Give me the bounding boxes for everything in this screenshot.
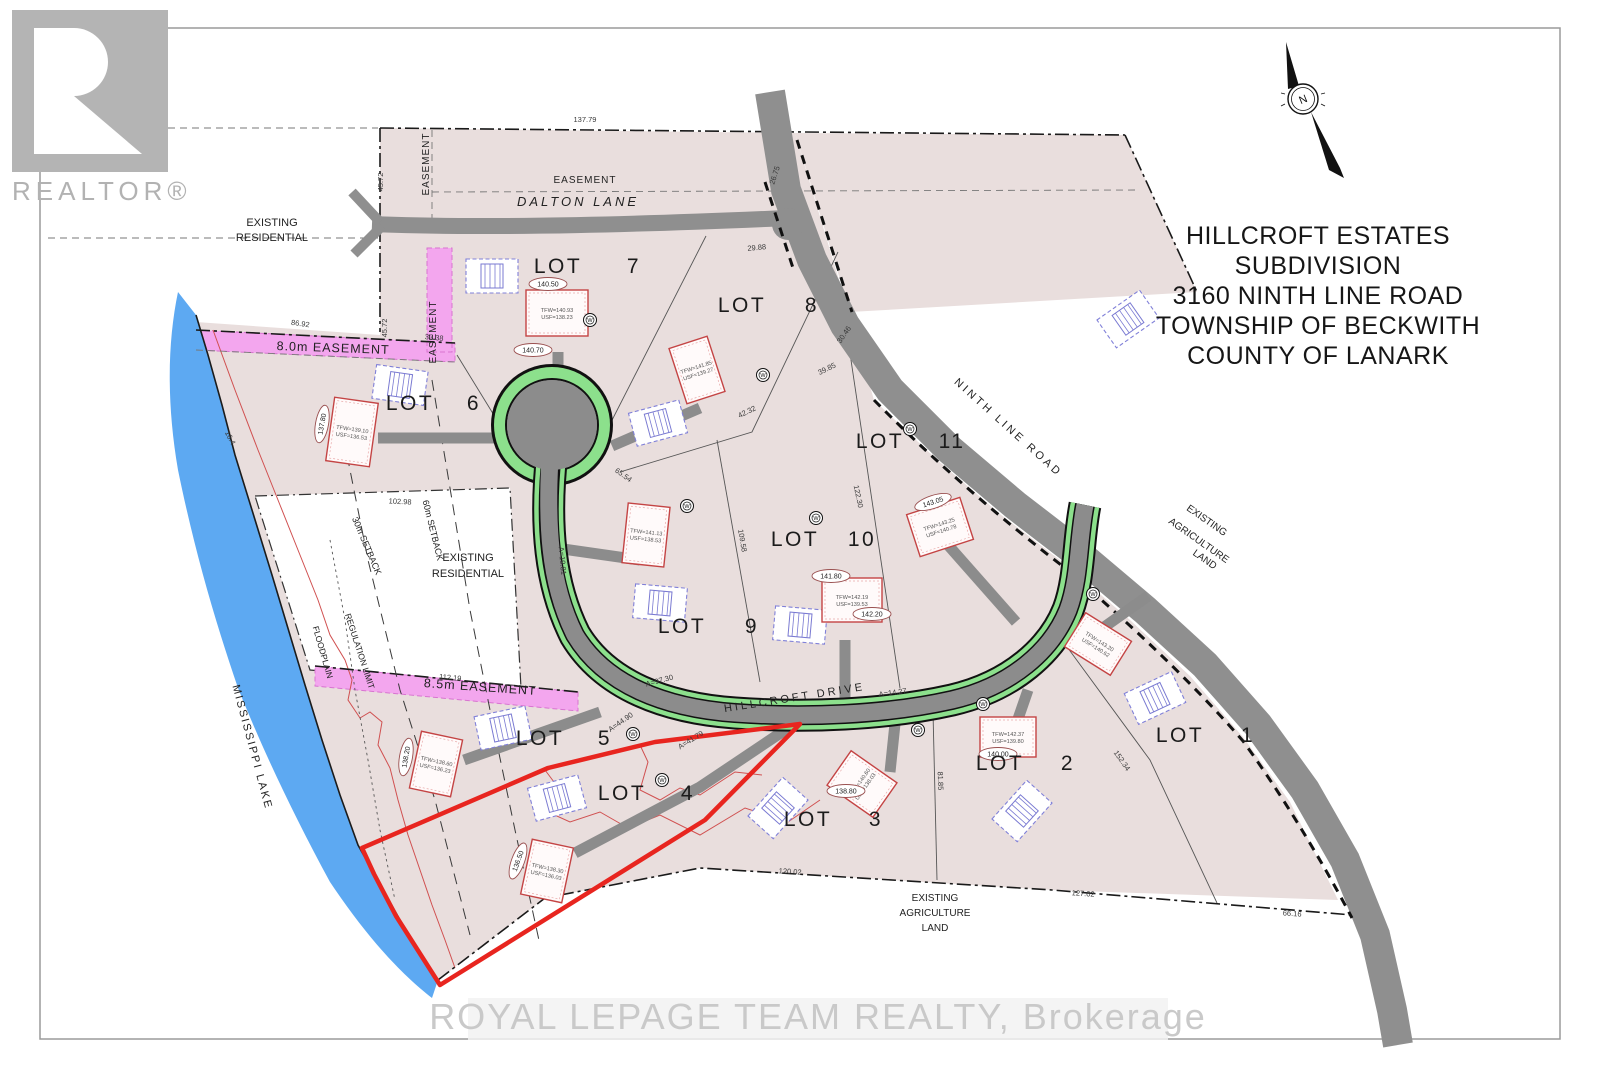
oval-value: 141.80 xyxy=(820,573,842,580)
dimension-text: 45.72 xyxy=(376,173,385,192)
map-label: RESIDENTIAL xyxy=(432,568,504,580)
lot-label-word: LOT xyxy=(784,808,832,831)
elevation-oval: 141.80 xyxy=(812,570,850,583)
well-symbol: W xyxy=(584,314,597,327)
lot-label-number: 4 xyxy=(681,782,695,805)
well-letter: W xyxy=(587,318,593,324)
lot-label-number: 1 xyxy=(1241,724,1255,747)
elevation-oval: 140.70 xyxy=(514,344,552,357)
elevation-oval: 138.80 xyxy=(827,785,865,798)
map-label: DALTON LANE xyxy=(517,194,639,209)
realtor-wordmark: REALTOR® xyxy=(12,176,192,206)
road-junction xyxy=(772,208,804,240)
lot-label-word: LOT xyxy=(718,294,766,317)
well-letter: W xyxy=(1090,592,1096,598)
title-line: SUBDIVISION xyxy=(1235,252,1402,280)
well-symbol: W xyxy=(757,369,770,382)
lot-label-word: LOT xyxy=(534,255,582,278)
lot-label-number: 3 xyxy=(869,808,883,831)
title-line: TOWNSHIP OF BECKWITH xyxy=(1156,312,1480,340)
dimension-text: 81.85 xyxy=(936,771,946,790)
well-letter: W xyxy=(659,778,665,784)
septic-bed xyxy=(773,606,828,644)
map-label: EASEMENT xyxy=(553,175,616,186)
title-line: 3160 NINTH LINE ROAD xyxy=(1173,282,1464,310)
lot-label-word: LOT xyxy=(386,392,434,415)
oval-value: 142.20 xyxy=(861,611,883,618)
map-label: EASEMENT xyxy=(421,132,432,195)
oval-value: 138.80 xyxy=(835,788,857,795)
lot-label-word: LOT xyxy=(771,528,819,551)
realtor-logo: REALTOR® xyxy=(12,10,192,206)
house-footprint: TFW=139.10USF=136.53 xyxy=(326,397,378,467)
septic-outline xyxy=(773,606,828,644)
dimension-text: 120.02 xyxy=(778,866,802,877)
oval-value: 140.70 xyxy=(522,347,544,354)
dimension-text: 137.79 xyxy=(574,115,597,124)
map-label: EXISTING xyxy=(912,893,959,904)
well-letter: W xyxy=(813,516,819,522)
dimension-text: 102.98 xyxy=(388,496,411,506)
lot-label-word: LOT xyxy=(516,727,564,750)
well-symbol: W xyxy=(1087,588,1100,601)
lot-label-word: LOT xyxy=(1156,724,1204,747)
lot-label-word: LOT xyxy=(598,782,646,805)
lot-label-number: 2 xyxy=(1061,752,1075,775)
map-label: EXISTING xyxy=(246,217,297,229)
well-letter: W xyxy=(980,702,986,708)
lot-label-word: LOT xyxy=(658,615,706,638)
house-elevation-tfw: TFW=142.19 xyxy=(836,595,869,601)
lot-label-number: 7 xyxy=(627,255,641,278)
lot-label-number: 11 xyxy=(939,430,966,453)
oval-value: 140.50 xyxy=(537,281,559,288)
lot-label-number: 9 xyxy=(745,615,759,638)
dimension-text: 45.72 xyxy=(380,319,389,338)
elevation-oval: 140.50 xyxy=(529,278,567,291)
map-label: RESIDENTIAL xyxy=(236,232,308,244)
well-symbol: W xyxy=(977,698,990,711)
well-symbol: W xyxy=(681,500,694,513)
lot-label-word: LOT xyxy=(976,752,1024,775)
map-label: AGRICULTURE xyxy=(900,908,971,919)
well-symbol: W xyxy=(904,423,917,436)
lot-label-number: 6 xyxy=(467,392,481,415)
well-symbol: W xyxy=(810,512,823,525)
watermark: ROYAL LEPAGE TEAM REALTY, Brokerage xyxy=(429,996,1207,1040)
map-label: LAND xyxy=(922,923,949,934)
septic-bed xyxy=(466,259,518,293)
well-letter: W xyxy=(915,728,921,734)
house-footprint: TFW=141.13USF=138.53 xyxy=(622,503,670,567)
well-letter: W xyxy=(630,732,636,738)
map-label: EXISTING xyxy=(442,552,493,564)
well-symbol: W xyxy=(912,724,925,737)
house-elevation-usf: USF=139.53 xyxy=(836,602,868,608)
well-letter: W xyxy=(907,427,913,433)
title-line: COUNTY OF LANARK xyxy=(1187,342,1449,370)
watermark-text: ROYAL LEPAGE TEAM REALTY, Brokerage xyxy=(429,996,1207,1037)
title-line: HILLCROFT ESTATES xyxy=(1186,222,1450,250)
map-label: EASEMENT xyxy=(428,300,439,363)
dimension-text: 66.16 xyxy=(1282,908,1301,918)
well-symbol: W xyxy=(656,774,669,787)
dimension-text: 29.88 xyxy=(747,242,766,253)
house-elevation-tfw: TFW=142.37 xyxy=(992,732,1025,738)
house-footprint: TFW=140.93USF=138.23 xyxy=(526,290,588,336)
lot-label-word: LOT xyxy=(856,430,904,453)
well-letter: W xyxy=(684,504,690,510)
well-symbol: W xyxy=(627,728,640,741)
subdivision-plan-map: TFW=140.93USF=138.23TFW=141.85USF=139.27… xyxy=(0,0,1600,1067)
dimension-text: 127.02 xyxy=(1071,888,1095,899)
house-elevation-tfw: TFW=140.93 xyxy=(541,308,574,314)
elevation-oval: 142.20 xyxy=(853,608,891,621)
well-letter: W xyxy=(760,373,766,379)
lot-label-number: 10 xyxy=(848,528,876,551)
lot-label-number: 8 xyxy=(805,294,819,317)
house-elevation-usf: USF=139.80 xyxy=(992,739,1024,745)
house-elevation-usf: USF=138.23 xyxy=(541,315,573,321)
title-block: HILLCROFT ESTATES SUBDIVISION 3160 NINTH… xyxy=(1156,222,1480,370)
